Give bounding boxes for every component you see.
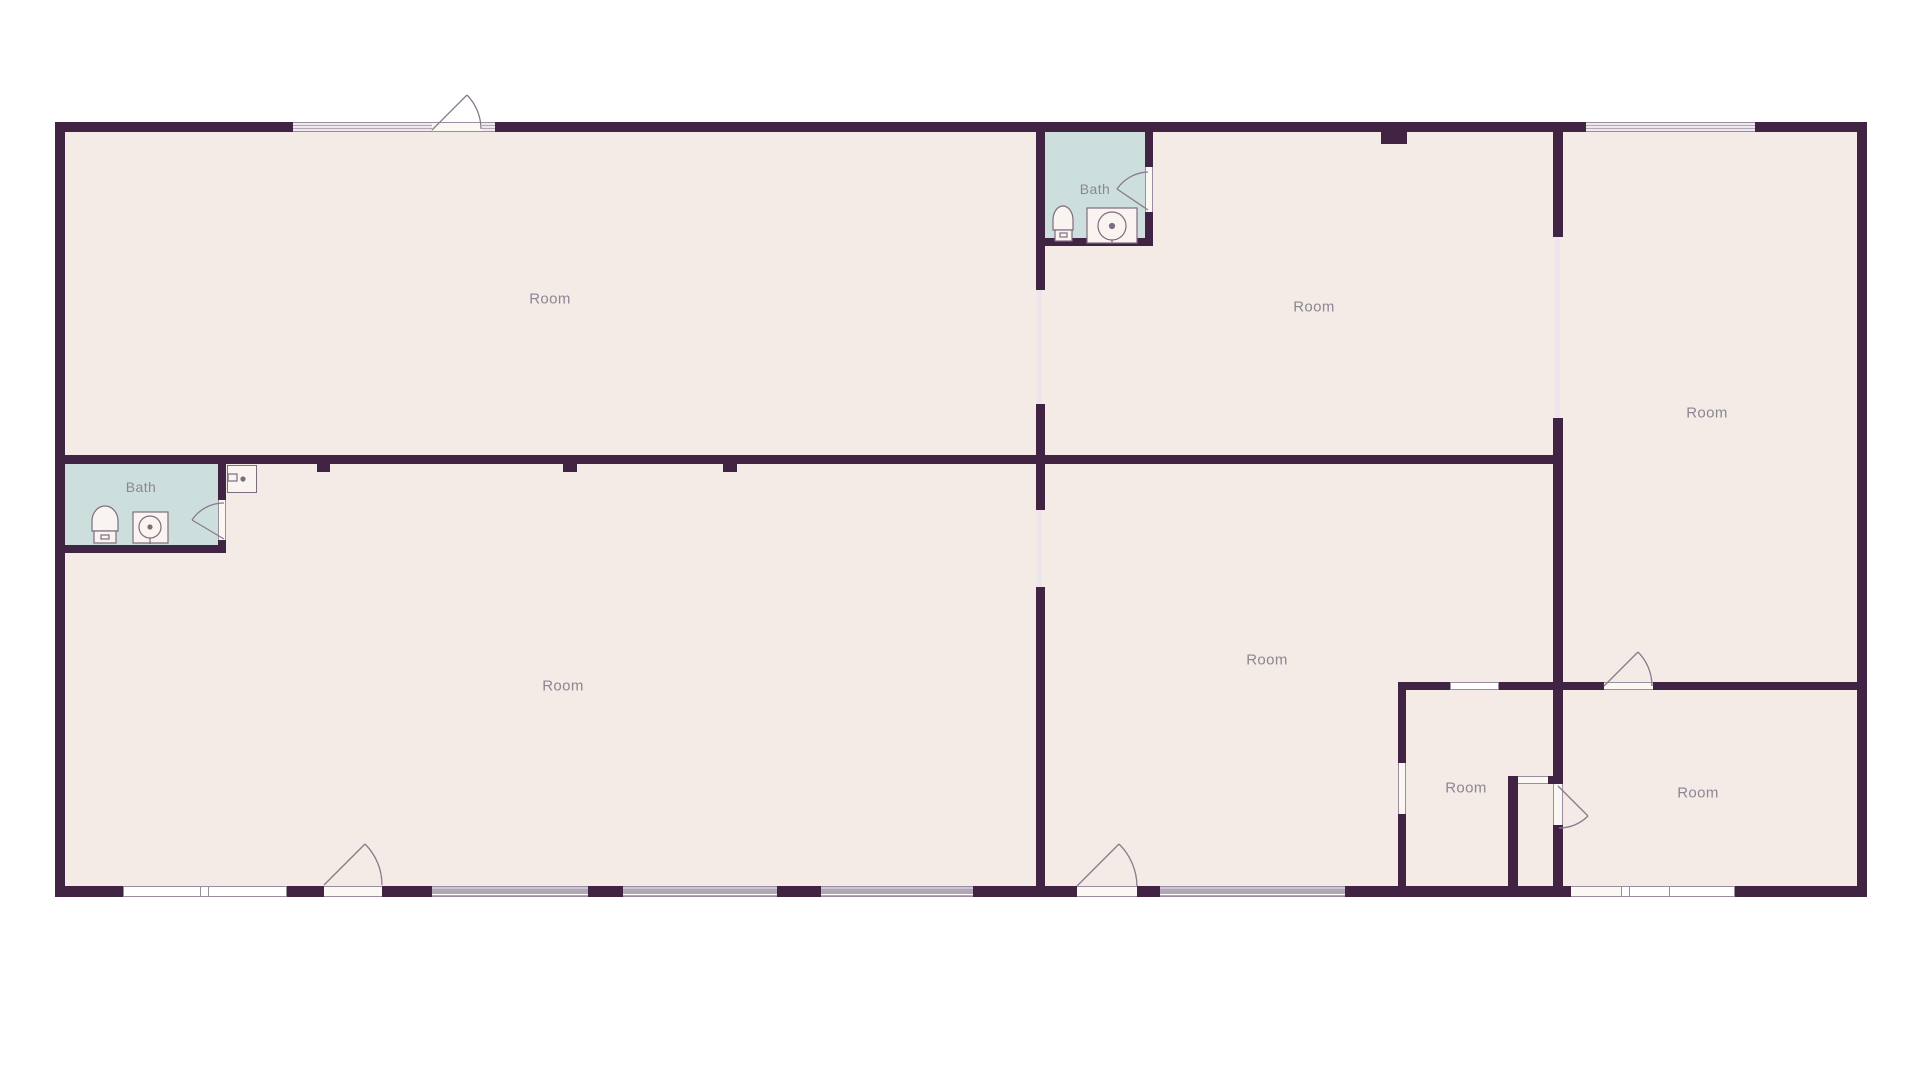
- room-label: Room: [1246, 652, 1288, 669]
- window: [1450, 682, 1499, 690]
- wall-segment: [1398, 690, 1406, 763]
- wall-segment: [55, 886, 123, 897]
- wall-segment: [777, 886, 821, 897]
- room-label: Room: [1445, 780, 1487, 797]
- wall-segment: [1857, 122, 1867, 897]
- wall-segment: [1499, 682, 1604, 690]
- wall-segment: [1398, 682, 1450, 690]
- wall-segment: [1553, 132, 1563, 237]
- wall-tab: [317, 464, 330, 472]
- wall-segment: [1137, 886, 1160, 897]
- wall-segment: [495, 122, 1586, 132]
- window: [123, 886, 287, 897]
- wall-segment: [55, 122, 293, 132]
- bath-label: Bath: [1080, 181, 1110, 197]
- room-label: Room: [1293, 299, 1335, 316]
- wall-segment: [382, 886, 432, 897]
- door-gap: [324, 886, 382, 897]
- wall-segment: [1755, 122, 1867, 132]
- wall-segment: [1036, 132, 1045, 290]
- wall-opening: [1037, 290, 1042, 404]
- niche-opening: [1518, 776, 1548, 784]
- room-label: Room: [1677, 785, 1719, 802]
- room-label: Room: [529, 291, 571, 308]
- window: [432, 886, 588, 897]
- floor-area: [65, 132, 1857, 886]
- door-gap: [1553, 784, 1563, 825]
- bath-wall: [55, 545, 226, 553]
- wall-segment: [1398, 814, 1406, 886]
- wall-segment: [55, 122, 65, 897]
- bath-wall: [1036, 238, 1153, 246]
- window-mullion: [200, 887, 201, 896]
- bath-wall: [218, 455, 226, 500]
- floor-plan: Room Room Room Room Room Room Room Bath …: [0, 0, 1920, 1080]
- wall-tab: [723, 464, 737, 472]
- wall-segment: [1548, 776, 1553, 784]
- room-label: Room: [542, 678, 584, 695]
- door-gap: [1145, 167, 1153, 212]
- window: [1586, 122, 1755, 132]
- wall-segment: [1036, 587, 1045, 897]
- wall-segment: [1553, 418, 1563, 784]
- pocket-opening: [1398, 763, 1406, 814]
- window: [482, 122, 495, 132]
- window: [1621, 886, 1735, 897]
- window: [1160, 886, 1345, 897]
- room-label: Room: [1686, 405, 1728, 422]
- wall-segment: [1553, 825, 1563, 897]
- washer-box: [227, 465, 257, 493]
- bath-left-floor: [65, 464, 218, 545]
- wall-opening: [1037, 510, 1042, 587]
- wall-segment: [973, 886, 1077, 897]
- wall-segment: [588, 886, 623, 897]
- wall-tab: [563, 464, 577, 472]
- wall-segment: [1653, 682, 1867, 690]
- window: [293, 122, 432, 132]
- door-gap: [1077, 886, 1137, 897]
- bath-label: Bath: [126, 479, 156, 495]
- floor-plan-page: { "theme": { "background": "#ffffff", "f…: [0, 0, 1920, 1080]
- wall-segment: [1345, 886, 1571, 897]
- door-gap: [218, 500, 226, 540]
- wall-segment: [1735, 886, 1867, 897]
- window-mullion: [1669, 887, 1670, 896]
- wall-segment: [287, 886, 324, 897]
- bath-wall: [1145, 212, 1153, 246]
- window: [623, 886, 777, 897]
- door-gap: [432, 122, 482, 132]
- door-gap: [1604, 682, 1653, 690]
- wall-opening: [1555, 237, 1560, 418]
- window: [821, 886, 973, 897]
- wall-stub: [1381, 132, 1407, 144]
- sliding-door-gap: [1571, 886, 1621, 897]
- wall-segment: [1036, 404, 1045, 510]
- bath-wall: [1145, 132, 1153, 167]
- wall-segment: [55, 455, 1563, 464]
- wall-segment: [1508, 776, 1518, 886]
- window-mullion: [208, 887, 209, 896]
- window-mullion: [1629, 887, 1630, 896]
